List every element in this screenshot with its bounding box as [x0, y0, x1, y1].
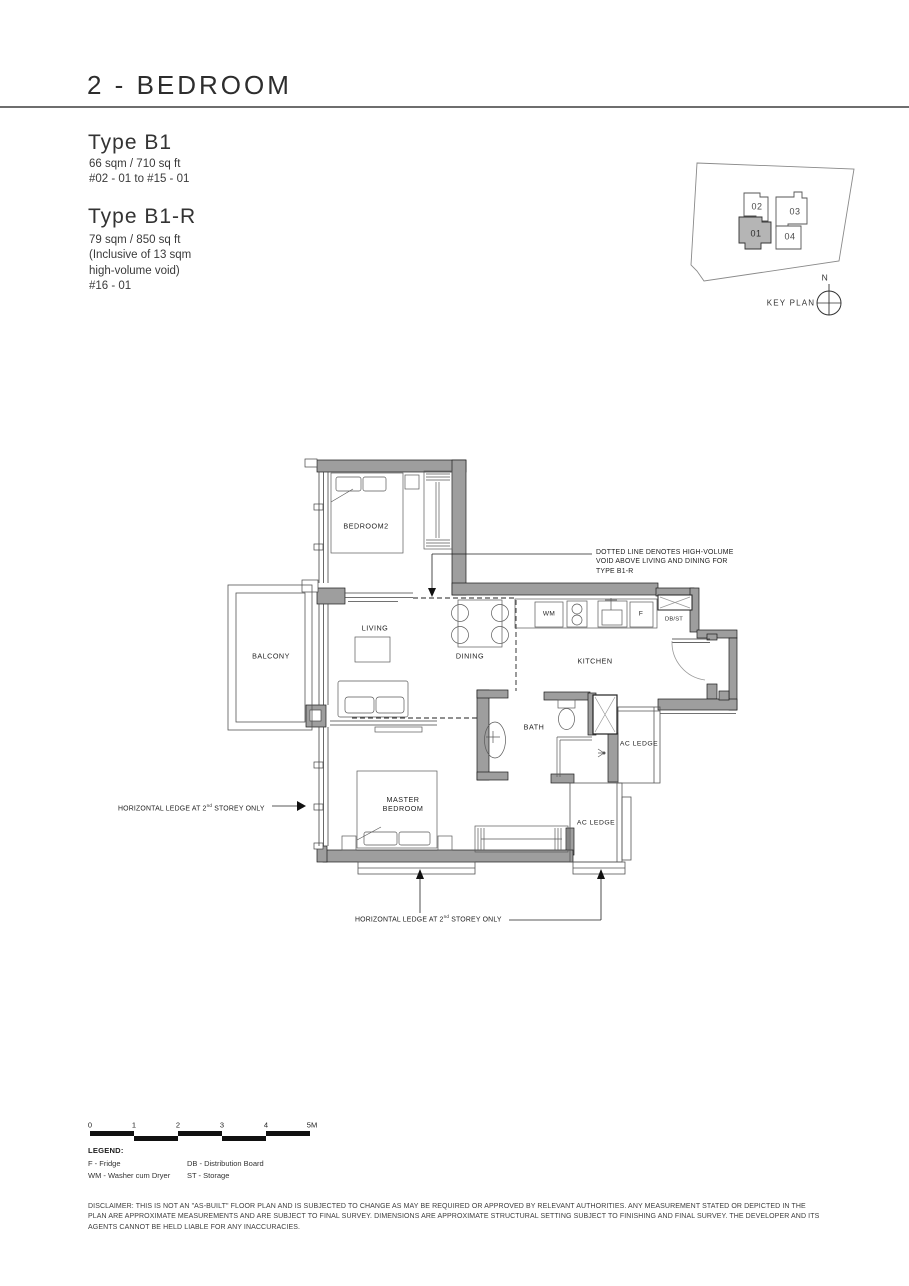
faucet-icon [605, 598, 617, 610]
disclaimer-text: DISCLAIMER: THIS IS NOT AN "AS-BUILT" FL… [88, 1202, 822, 1233]
key-unit-label-02: 02 [751, 203, 762, 212]
type-b1-levels: #02 - 01 to #15 - 01 [89, 172, 189, 187]
void-note-line3: TYPE B1-R [596, 567, 734, 576]
key-unit-label-01: 01 [750, 230, 761, 239]
floorplan-page: 2 - BEDROOM Type B1 66 sqm / 710 sq ft #… [0, 0, 909, 1286]
toilet-tank-icon [558, 700, 575, 708]
key-unit-label-04: 04 [784, 233, 795, 242]
type-b1r-area: 79 sqm / 850 sq ft [89, 233, 191, 248]
void-note-line2: VOID ABOVE LIVING AND DINING FOR [596, 557, 734, 566]
dining-furniture [452, 600, 509, 647]
bed-icon [331, 473, 403, 553]
legend-item-db: DB - Distribution Board [187, 1158, 264, 1170]
legend-column-1: F - Fridge WM - Washer cum Dryer [88, 1158, 170, 1182]
sofa-icon [338, 681, 408, 717]
room-label-living: LIVING [362, 624, 389, 633]
scale-tick-0: 0 [88, 1121, 92, 1130]
type-b1r-name: Type B1-R [88, 205, 196, 229]
kitchen-counter [515, 599, 657, 628]
compass-icon [817, 284, 841, 315]
key-plan-title: KEY PLAN [767, 299, 816, 308]
dining-table-icon [458, 600, 502, 647]
entrance-door [672, 639, 710, 680]
shower-duct-box [593, 695, 617, 734]
type-b1-area: 66 sqm / 710 sq ft [89, 157, 189, 172]
void-note: DOTTED LINE DENOTES HIGH-VOLUME VOID ABO… [596, 548, 734, 576]
legend-item-washer: WM - Washer cum Dryer [88, 1170, 170, 1182]
bedroom2-furniture [331, 471, 452, 553]
chair-icon [492, 605, 509, 622]
chair-icon [452, 605, 469, 622]
type-b1r-details: 79 sqm / 850 sq ft (Inclusive of 13 sqm … [89, 233, 191, 295]
room-label-ac-ledge-lower: AC LEDGE [577, 819, 615, 828]
ledge-note-left: HORIZONTAL LEDGE AT 2nd STOREY ONLY [118, 801, 265, 814]
title-divider [0, 106, 909, 108]
key-unit-label-03: 03 [789, 208, 800, 217]
void-note-line1: DOTTED LINE DENOTES HIGH-VOLUME [596, 548, 734, 557]
room-label-dining: DINING [456, 652, 484, 661]
ledge-note-bottom: HORIZONTAL LEDGE AT 2nd STOREY ONLY [355, 912, 502, 925]
scale-tick-4: 4 [264, 1121, 268, 1130]
scale-tick-3: 3 [220, 1121, 224, 1130]
side-table-icon [438, 836, 452, 850]
room-label-ac-ledge-upper: AC LEDGE [620, 740, 658, 749]
legend-item-storage: ST - Storage [187, 1170, 264, 1182]
page-title: 2 - BEDROOM [87, 70, 292, 101]
arrow-down-icon [428, 588, 436, 597]
room-label-balcony: BALCONY [252, 652, 290, 661]
legend-title: LEGEND: [88, 1146, 124, 1155]
scale-tick-5: 5M [307, 1121, 317, 1130]
db-st-box [658, 595, 692, 610]
wardrobe-icon [424, 471, 452, 549]
site-boundary [691, 163, 854, 281]
type-b1-details: 66 sqm / 710 sq ft #02 - 01 to #15 - 01 [89, 157, 189, 188]
toilet-icon [559, 709, 575, 730]
fixture-label-fridge: F [639, 610, 643, 619]
scale-tick-1: 1 [132, 1121, 136, 1130]
chair-icon [492, 627, 509, 644]
chair-icon [452, 627, 469, 644]
room-label-bath: BATH [524, 723, 545, 732]
bath-fixtures [485, 700, 606, 777]
floor-plan-svg [0, 0, 909, 1286]
type-b1r-note2: high-volume void) [89, 264, 191, 279]
legend-item-fridge: F - Fridge [88, 1158, 170, 1170]
shower-stall [557, 737, 592, 777]
coffee-table-icon [355, 637, 390, 662]
type-b1-name: Type B1 [88, 131, 172, 155]
room-label-bedroom2: BEDROOM2 [343, 522, 388, 531]
scale-bar [90, 1131, 310, 1141]
north-label: N [822, 274, 829, 283]
type-b1r-levels: #16 - 01 [89, 279, 191, 294]
side-table-icon [405, 475, 419, 489]
room-label-master-bedroom: MASTER BEDROOM [371, 795, 435, 813]
kitchen-fixtures [515, 598, 657, 628]
legend-column-2: DB - Distribution Board ST - Storage [187, 1158, 264, 1182]
door-leaf [672, 639, 710, 643]
side-table-icon [342, 836, 356, 850]
door-swing-arc [672, 641, 705, 680]
arrow-right-icon [297, 801, 306, 811]
tv-console-icon [375, 727, 422, 732]
annotation-arrowheads [297, 588, 605, 879]
fixture-label-wm: WM [543, 610, 555, 619]
key-plan [691, 163, 854, 315]
void-dashed-lines [352, 598, 516, 718]
scale-tick-2: 2 [176, 1121, 180, 1130]
type-b1r-note1: (Inclusive of 13 sqm [89, 248, 191, 263]
room-label-kitchen: KITCHEN [577, 657, 612, 666]
fixture-label-db-st: DB/ST [665, 616, 683, 625]
